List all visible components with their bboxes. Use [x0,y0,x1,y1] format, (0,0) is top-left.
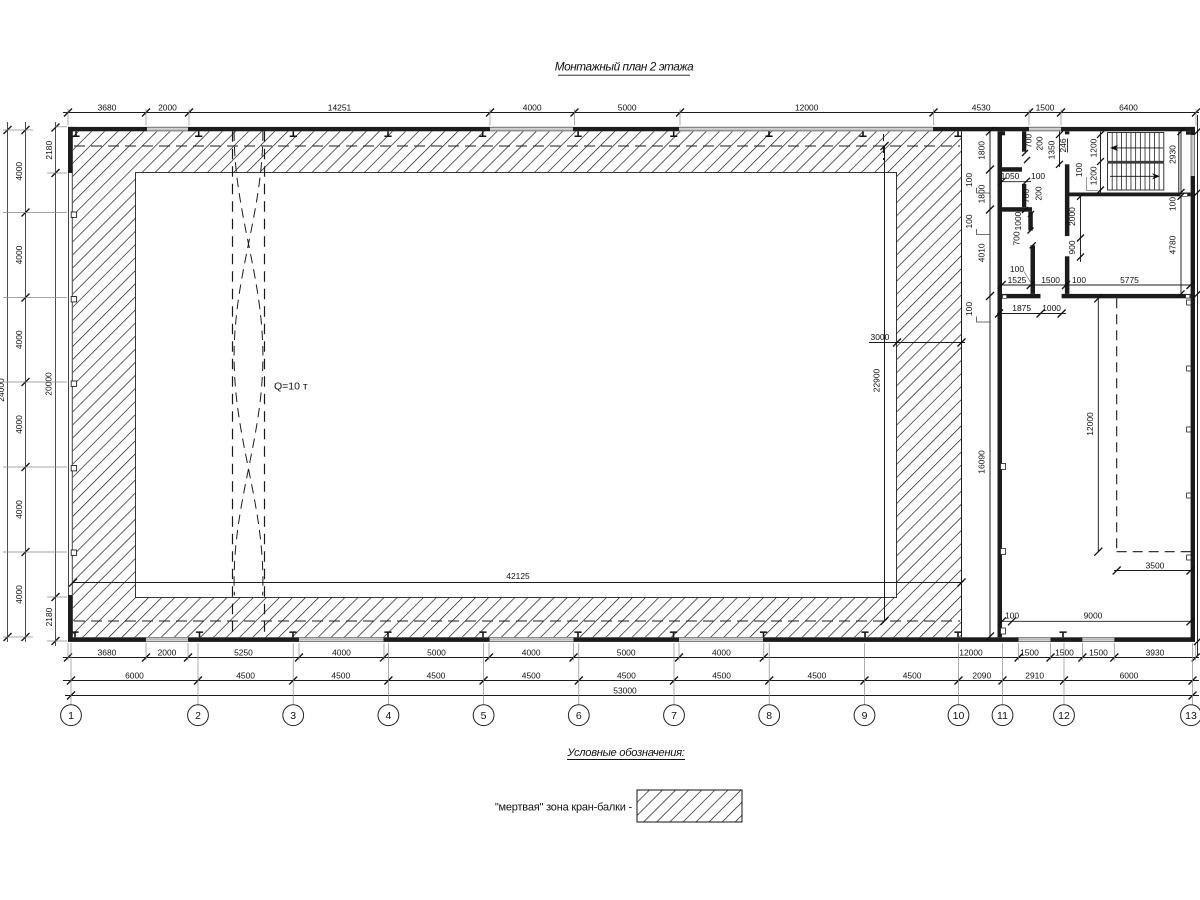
svg-text:1500: 1500 [1020,648,1039,658]
svg-text:3680: 3680 [98,103,117,113]
svg-text:4000: 4000 [332,648,351,658]
svg-text:2000: 2000 [158,103,177,113]
svg-text:2180: 2180 [44,141,54,160]
svg-text:2090: 2090 [972,671,991,681]
svg-text:10: 10 [953,710,965,722]
svg-text:4000: 4000 [14,330,24,349]
svg-text:3680: 3680 [98,648,117,658]
svg-text:4500: 4500 [808,671,827,681]
svg-text:12: 12 [1058,710,1070,722]
svg-text:6400: 6400 [1119,103,1138,113]
svg-text:2000: 2000 [158,648,177,658]
svg-text:4000: 4000 [522,648,541,658]
svg-text:4500: 4500 [712,671,731,681]
svg-text:1500: 1500 [1041,275,1060,285]
svg-text:4010: 4010 [977,243,987,262]
svg-text:1000: 1000 [1042,303,1061,313]
svg-text:9: 9 [862,710,868,722]
svg-text:1500: 1500 [1036,103,1055,113]
svg-text:4000: 4000 [14,245,24,264]
svg-text:100: 100 [1074,163,1084,177]
svg-text:4000: 4000 [14,162,24,181]
svg-text:1800: 1800 [977,141,987,160]
svg-text:4: 4 [385,710,391,722]
svg-text:4530: 4530 [972,103,991,113]
svg-text:100: 100 [1005,611,1019,621]
svg-text:1000: 1000 [1013,211,1023,230]
svg-text:Монтажный план 2 этажа: Монтажный план 2 этажа [555,60,694,74]
svg-text:100: 100 [1072,275,1086,285]
svg-text:4500: 4500 [236,671,255,681]
svg-text:42125: 42125 [506,571,530,581]
svg-text:200: 200 [1034,186,1044,200]
svg-text:22900: 22900 [872,368,882,392]
svg-text:5000: 5000 [618,103,637,113]
svg-text:100: 100 [1010,264,1024,274]
svg-text:4500: 4500 [903,671,922,681]
svg-text:1500: 1500 [1089,648,1108,658]
svg-text:700: 700 [1021,189,1031,203]
svg-text:4000: 4000 [523,103,542,113]
svg-text:4000: 4000 [712,648,731,658]
svg-text:3930: 3930 [1146,648,1165,658]
svg-text:9000: 9000 [1084,611,1103,621]
svg-text:24000: 24000 [0,378,6,402]
svg-text:6000: 6000 [1120,671,1139,681]
svg-text:5000: 5000 [617,648,636,658]
svg-text:13: 13 [1185,710,1197,722]
svg-text:1200: 1200 [1089,138,1099,157]
svg-text:12000: 12000 [1085,412,1095,436]
svg-text:5250: 5250 [234,648,253,658]
svg-text:4500: 4500 [331,671,350,681]
svg-text:4000: 4000 [14,500,24,519]
svg-text:2000: 2000 [1067,207,1077,226]
svg-text:2180: 2180 [44,607,54,626]
svg-text:11: 11 [997,710,1008,722]
svg-text:100: 100 [964,173,974,187]
svg-text:100: 100 [1168,197,1178,211]
svg-text:1525: 1525 [1008,275,1027,285]
svg-text:1350: 1350 [1047,140,1057,159]
svg-text:5000: 5000 [427,648,446,658]
svg-text:8: 8 [766,710,772,722]
svg-text:700: 700 [1012,231,1022,245]
svg-text:12000: 12000 [959,648,983,658]
svg-text:14251: 14251 [328,103,352,113]
svg-text:4780: 4780 [1168,235,1178,254]
svg-text:3: 3 [290,710,296,722]
svg-text:4500: 4500 [617,671,636,681]
svg-text:Q=10 т: Q=10 т [274,381,308,393]
svg-text:5: 5 [481,710,487,722]
svg-text:1500: 1500 [1055,648,1074,658]
svg-text:20000: 20000 [44,372,54,396]
svg-text:1050: 1050 [1001,171,1020,181]
svg-text:1875: 1875 [1012,303,1031,313]
svg-text:6000: 6000 [125,671,144,681]
svg-text:3000: 3000 [871,332,890,342]
svg-text:6: 6 [576,710,582,722]
svg-text:700: 700 [1024,134,1034,148]
svg-text:100: 100 [1031,171,1045,181]
svg-text:100: 100 [964,214,974,228]
svg-text:16090: 16090 [977,450,987,474]
svg-text:"мертвая" зона кран-балки -: "мертвая" зона кран-балки - [495,802,633,814]
svg-text:Условные обозначения:: Условные обозначения: [566,747,684,759]
svg-text:4000: 4000 [14,585,24,604]
svg-text:3500: 3500 [1146,561,1165,571]
svg-text:4000: 4000 [14,415,24,434]
svg-text:4500: 4500 [522,671,541,681]
svg-text:1: 1 [68,710,74,722]
svg-text:1800: 1800 [977,184,987,203]
svg-text:1200: 1200 [1089,166,1099,185]
svg-text:100: 100 [964,302,974,316]
svg-text:900: 900 [1067,240,1077,254]
svg-text:7: 7 [671,710,677,722]
svg-text:2910: 2910 [1025,671,1044,681]
svg-text:2930: 2930 [1168,145,1178,164]
svg-text:4500: 4500 [427,671,446,681]
svg-text:200: 200 [1035,136,1045,150]
svg-text:5775: 5775 [1120,275,1139,285]
svg-text:2: 2 [195,710,201,722]
svg-text:53000: 53000 [613,686,637,696]
svg-text:12000: 12000 [795,103,819,113]
